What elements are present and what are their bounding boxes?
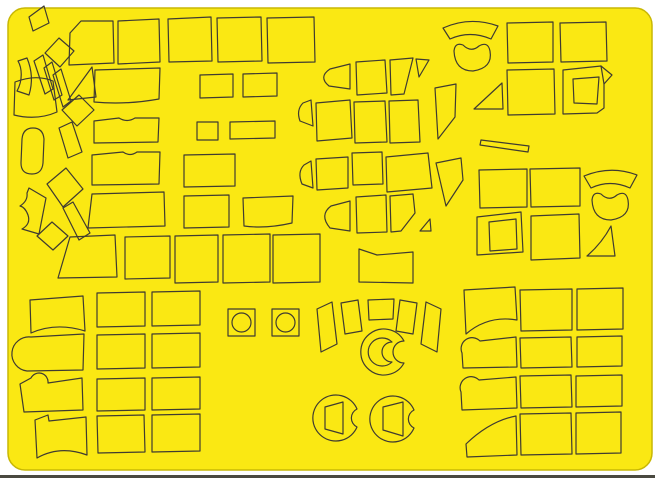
mask-sheet (0, 0, 655, 478)
mask-sheet-photo (0, 0, 655, 478)
sheet-background (8, 8, 652, 470)
